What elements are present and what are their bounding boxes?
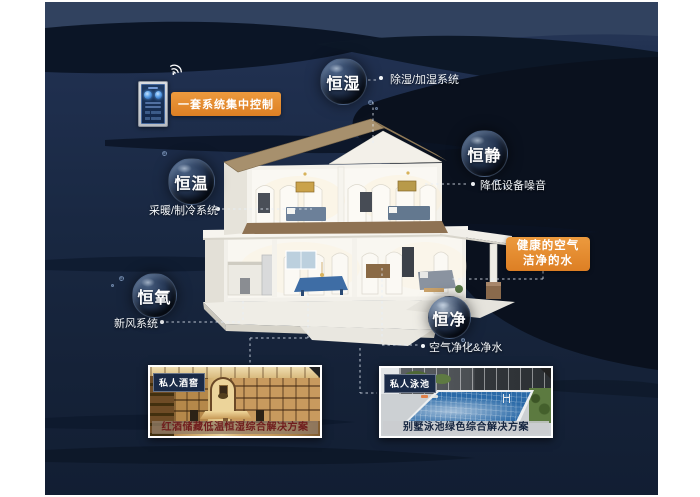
- deco-bubble: [375, 107, 378, 110]
- healthy-air-water-badge: 健康的空气 洁净的水: [506, 237, 590, 271]
- smart-control-panel: [138, 81, 168, 127]
- bubble-constant-temperature: 恒温: [168, 158, 215, 205]
- healthy-line1: 健康的空气: [506, 239, 590, 254]
- panel-key: [151, 117, 156, 120]
- deco-bubble: [119, 276, 124, 281]
- callout-fresh-air: 新风系统: [114, 315, 158, 331]
- bubble-constant-humidity: 恒湿: [320, 58, 367, 105]
- callout-heating-cooling: 采暖/制冷系统: [149, 202, 218, 218]
- callout-air-water-purification: 空气净化&净水: [429, 339, 502, 355]
- bubble-constant-quiet: 恒静: [461, 130, 508, 177]
- panel-title-bar: [148, 87, 159, 89]
- panel-readout-row: [145, 102, 161, 104]
- deco-bubble: [162, 151, 167, 156]
- corner-fold-icon: [309, 367, 320, 378]
- wine-cellar-tag: 私人酒窖: [153, 373, 205, 392]
- wine-cellar-caption: 红酒储藏低温恒湿综合解决方案: [152, 421, 318, 434]
- pool-caption: 别墅泳池绿色综合解决方案: [383, 421, 549, 434]
- private-pool-card: 私人泳池 别墅泳池绿色综合解决方案: [379, 366, 553, 438]
- callout-reduce-noise: 降低设备噪音: [480, 177, 546, 193]
- bubble-constant-purity: 恒净: [428, 296, 471, 339]
- panel-key: [145, 111, 150, 114]
- callout-dehumidify-humidify: 除湿/加湿系统: [390, 71, 459, 87]
- deco-bubble: [111, 284, 114, 287]
- pool-tag: 私人泳池: [384, 374, 436, 393]
- healthy-line2: 洁净的水: [506, 254, 590, 269]
- humidity-dial: [155, 91, 163, 99]
- panel-readout-row: [145, 106, 161, 108]
- panel-key: [145, 117, 150, 120]
- control-panel-screen: [141, 84, 165, 124]
- panel-key: [156, 111, 161, 114]
- panel-key: [151, 111, 156, 114]
- central-control-badge: 一套系统集中控制: [171, 92, 281, 116]
- temperature-dial: [144, 91, 152, 99]
- poster-page: 一套系统集中控制 健康的空气 洁净的水 恒湿 恒静 恒温 恒氧 恒净 除湿/加湿…: [0, 0, 700, 497]
- deco-bubble: [368, 100, 373, 105]
- wine-cellar-card: 私人酒窖 红酒储藏低温恒湿综合解决方案: [148, 365, 322, 438]
- corner-fold-icon: [540, 368, 551, 379]
- panel-key: [156, 117, 161, 120]
- bubble-constant-oxygen: 恒氧: [132, 273, 177, 318]
